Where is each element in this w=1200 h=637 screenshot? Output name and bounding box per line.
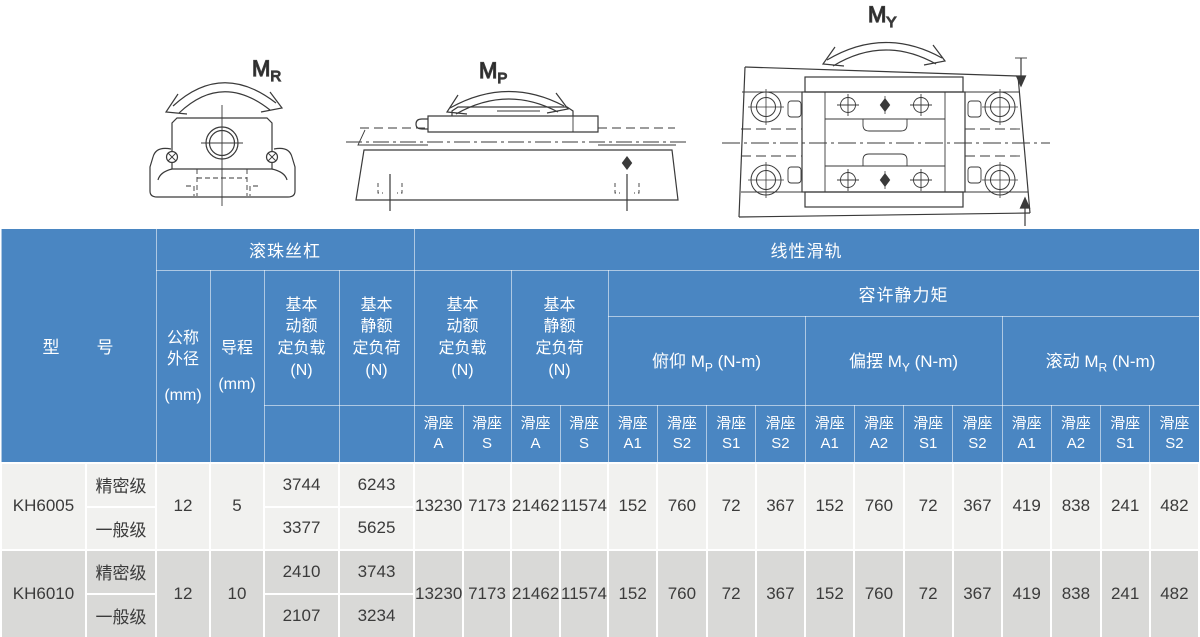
grade-cell: 一般级 bbox=[86, 507, 156, 550]
model-cell: KH6005 bbox=[1, 463, 86, 550]
slider-header-cell: 滑座S1 bbox=[1101, 406, 1150, 463]
header-row-columns: 公称 外径 (mm) 导程 (mm) 基本 动额 定负载 (N) 基本 静额 定… bbox=[1, 271, 1199, 317]
value-cell: 838 bbox=[1051, 550, 1100, 637]
slider-header-cell: 滑座S bbox=[560, 406, 608, 463]
header-cell-pitch-moment: 俯仰 MP (N-m) bbox=[608, 317, 805, 406]
header-cell-lin-dynamic: 基本 动额 定负载 (N) bbox=[414, 271, 511, 406]
table-row: KH6010 精密级 12 10 2410 3743 13230 7173 21… bbox=[1, 550, 1199, 594]
value-cell: 11574 bbox=[560, 463, 608, 550]
header-cell-bs-dynamic: 基本 动额 定负载 (N) bbox=[264, 271, 339, 406]
model-cell: KH6010 bbox=[1, 550, 86, 637]
mp-reference-dot bbox=[623, 157, 632, 169]
value-cell: 21462 bbox=[511, 463, 560, 550]
value-cell: 3744 bbox=[264, 463, 339, 507]
value-cell: 760 bbox=[854, 463, 903, 550]
value-cell: 241 bbox=[1101, 550, 1150, 637]
moment-diagrams: MR bbox=[0, 0, 1200, 228]
empty-header-cell bbox=[339, 406, 414, 463]
my-diagram: MY bbox=[722, 2, 1050, 226]
value-cell: 72 bbox=[707, 550, 756, 637]
value-cell: 152 bbox=[608, 550, 657, 637]
table-row: KH6005 精密级 12 5 3744 6243 13230 7173 214… bbox=[1, 463, 1199, 507]
slider-header-cell: 滑座A2 bbox=[854, 406, 903, 463]
slider-header-cell: 滑座A1 bbox=[1002, 406, 1051, 463]
value-cell: 13230 bbox=[414, 550, 463, 637]
header-cell-outer-dia: 公称 外径 (mm) bbox=[156, 271, 210, 463]
slider-header-cell: 滑座S1 bbox=[904, 406, 953, 463]
header-cell-lead: 导程 (mm) bbox=[210, 271, 264, 463]
value-cell: 367 bbox=[953, 550, 1002, 637]
value-cell: 2410 bbox=[264, 550, 339, 594]
value-cell: 838 bbox=[1051, 463, 1100, 550]
grade-cell: 精密级 bbox=[86, 463, 156, 507]
mp-diagram: MP bbox=[346, 58, 690, 211]
header-row-groups: 型 号 滚珠丝杠 线性滑轨 bbox=[1, 229, 1199, 271]
my-dimension-arrows bbox=[1015, 58, 1030, 226]
value-cell: 72 bbox=[904, 463, 953, 550]
value-cell: 419 bbox=[1002, 463, 1051, 550]
slider-header-cell: 滑座S bbox=[463, 406, 511, 463]
slider-header-cell: 滑座A2 bbox=[1051, 406, 1100, 463]
header-group-ball-screw: 滚珠丝杠 bbox=[156, 229, 414, 271]
lead-cell: 10 bbox=[210, 550, 264, 637]
datasheet-page: MR bbox=[0, 0, 1200, 637]
mr-label: MR bbox=[252, 56, 281, 85]
value-cell: 3377 bbox=[264, 507, 339, 550]
mr-diagram: MR bbox=[150, 56, 295, 206]
value-cell: 760 bbox=[657, 463, 706, 550]
spec-table: 型 号 滚珠丝杠 线性滑轨 公称 外径 (mm) 导程 (mm) 基本 动额 定… bbox=[0, 228, 1200, 637]
header-cell-bs-static: 基本 静额 定负荷 (N) bbox=[339, 271, 414, 406]
slider-header-cell: 滑座S2 bbox=[1150, 406, 1199, 463]
grade-cell: 一般级 bbox=[86, 594, 156, 637]
empty-header-cell bbox=[264, 406, 339, 463]
header-cell-roll-moment: 滚动 MR (N-m) bbox=[1002, 317, 1199, 406]
slider-header-cell: 滑座A bbox=[511, 406, 560, 463]
slider-header-cell: 滑座S2 bbox=[657, 406, 706, 463]
value-cell: 241 bbox=[1101, 463, 1150, 550]
value-cell: 72 bbox=[707, 463, 756, 550]
header-group-static-moment: 容许静力矩 bbox=[608, 271, 1199, 317]
slider-header-cell: 滑座S1 bbox=[707, 406, 756, 463]
value-cell: 7173 bbox=[463, 550, 511, 637]
value-cell: 7173 bbox=[463, 463, 511, 550]
value-cell: 5625 bbox=[339, 507, 414, 550]
slider-header-cell: 滑座S2 bbox=[756, 406, 805, 463]
grade-cell: 精密级 bbox=[86, 550, 156, 594]
value-cell: 3234 bbox=[339, 594, 414, 637]
outer-dia-cell: 12 bbox=[156, 550, 210, 637]
value-cell: 6243 bbox=[339, 463, 414, 507]
value-cell: 152 bbox=[608, 463, 657, 550]
value-cell: 367 bbox=[756, 550, 805, 637]
my-label: MY bbox=[868, 2, 896, 31]
slider-header-cell: 滑座A1 bbox=[608, 406, 657, 463]
my-arrowhead-right bbox=[924, 45, 945, 65]
value-cell: 13230 bbox=[414, 463, 463, 550]
slider-header-cell: 滑座A1 bbox=[805, 406, 854, 463]
value-cell: 2107 bbox=[264, 594, 339, 637]
value-cell: 760 bbox=[854, 550, 903, 637]
value-cell: 367 bbox=[756, 463, 805, 550]
lead-cell: 5 bbox=[210, 463, 264, 550]
value-cell: 760 bbox=[657, 550, 706, 637]
value-cell: 3743 bbox=[339, 550, 414, 594]
header-cell-model: 型 号 bbox=[1, 229, 156, 463]
value-cell: 482 bbox=[1150, 550, 1199, 637]
header-cell-yaw-moment: 偏摆 MY (N-m) bbox=[805, 317, 1002, 406]
slider-header-cell: 滑座S2 bbox=[953, 406, 1002, 463]
slider-header-cell: 滑座A bbox=[414, 406, 463, 463]
header-cell-lin-static: 基本 静额 定负荷 (N) bbox=[511, 271, 608, 406]
value-cell: 11574 bbox=[560, 550, 608, 637]
header-group-linear-rail: 线性滑轨 bbox=[414, 229, 1199, 271]
value-cell: 152 bbox=[805, 463, 854, 550]
value-cell: 152 bbox=[805, 550, 854, 637]
outer-dia-cell: 12 bbox=[156, 463, 210, 550]
value-cell: 419 bbox=[1002, 550, 1051, 637]
value-cell: 21462 bbox=[511, 550, 560, 637]
value-cell: 367 bbox=[953, 463, 1002, 550]
value-cell: 482 bbox=[1150, 463, 1199, 550]
value-cell: 72 bbox=[904, 550, 953, 637]
mp-label: MP bbox=[479, 58, 507, 87]
